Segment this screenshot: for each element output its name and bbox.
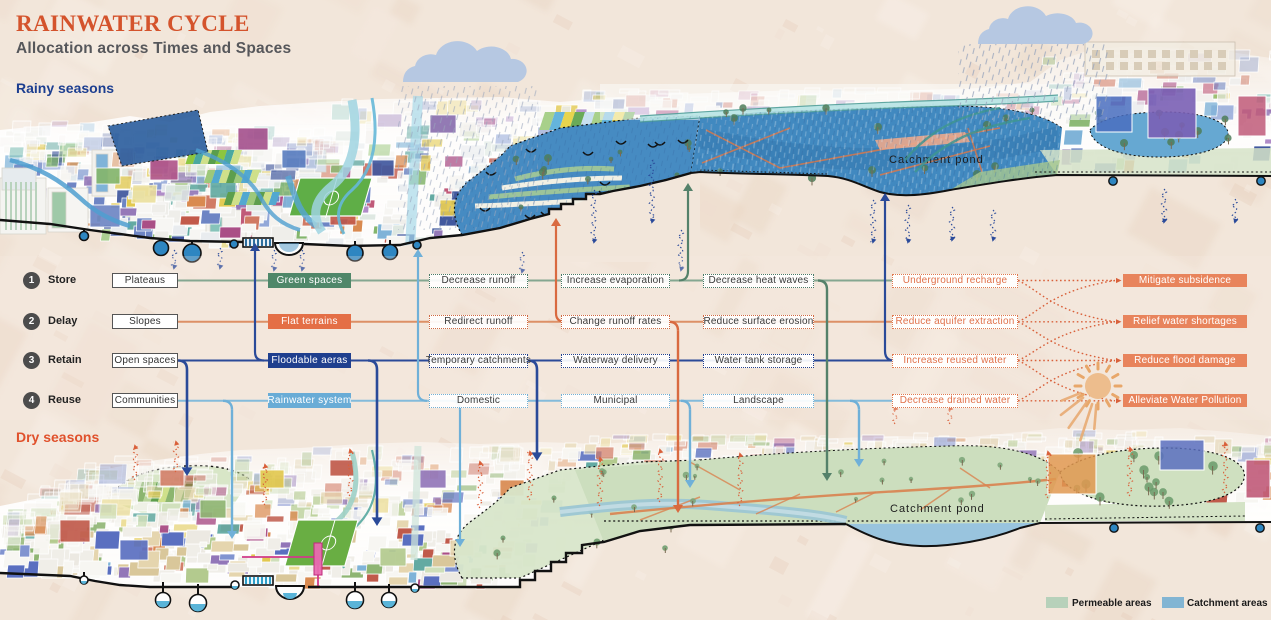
svg-text:Catchment pond: Catchment pond xyxy=(890,503,985,515)
